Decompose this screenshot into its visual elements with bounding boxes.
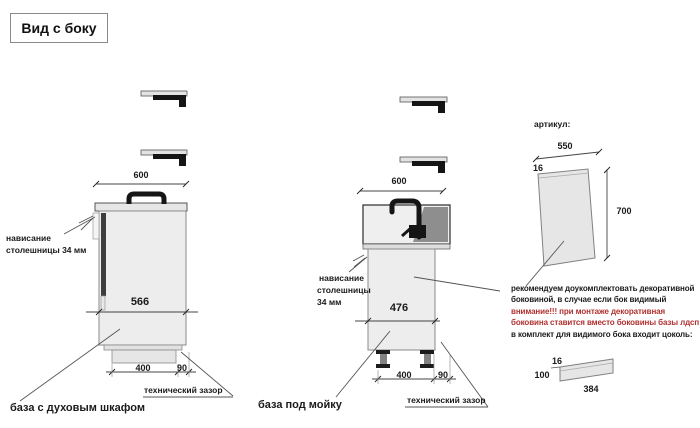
note-line-3-warning: внимание!!! при монтаже декоративная bbox=[511, 307, 665, 316]
oven-plinth-dim: 400 bbox=[130, 363, 156, 373]
wall-bracket-icon bbox=[141, 91, 187, 107]
oven-base-drawing bbox=[93, 194, 187, 363]
panel-thickness-dim: 16 bbox=[531, 163, 545, 173]
oven-overhang-note-line1: нависание bbox=[6, 233, 51, 243]
wall-bracket-icon bbox=[141, 150, 187, 166]
oven-tech-gap-label: технический зазор bbox=[144, 385, 223, 395]
panel-height-dim: 700 bbox=[612, 206, 636, 216]
note-line-5: в комплект для видимого бока входит цоко… bbox=[511, 330, 692, 339]
article-heading: артикул: bbox=[534, 119, 570, 129]
drawing-lines bbox=[0, 0, 700, 428]
sink-plinth-dim: 400 bbox=[391, 370, 417, 380]
wall-bracket-icon bbox=[400, 97, 447, 113]
sink-tech-gap-label: технический зазор bbox=[407, 395, 486, 405]
note-line-4-warning: боковина ставится вместо боковины базы л… bbox=[511, 318, 699, 327]
note-line-1: рекомендуем доукомплектовать декоративно… bbox=[511, 284, 694, 293]
decor-side-panel-drawing bbox=[538, 169, 595, 266]
sink-depth-dim: 476 bbox=[383, 302, 415, 314]
panel-width-dim: 550 bbox=[552, 141, 578, 151]
plinth-length-dim: 384 bbox=[578, 384, 604, 394]
leg-icon bbox=[420, 350, 434, 368]
sink-base-drawing bbox=[363, 201, 450, 368]
plinth-thickness-dim: 16 bbox=[550, 356, 564, 366]
sink-gap-dim: 90 bbox=[433, 370, 453, 380]
oven-base-label: база с духовым шкафом bbox=[10, 402, 145, 414]
wall-bracket-icon bbox=[400, 157, 447, 173]
sink-overhang-note-line3: 34 мм bbox=[317, 297, 341, 307]
sink-width-dim: 600 bbox=[386, 176, 412, 186]
oven-depth-dim: 566 bbox=[124, 296, 156, 308]
note-line-2: боковиной, в случае если бок видимый bbox=[511, 295, 666, 304]
leg-icon bbox=[376, 350, 390, 368]
sink-overhang-note-line1: нависание bbox=[319, 273, 364, 283]
oven-gap-dim: 90 bbox=[172, 363, 192, 373]
oven-overhang-note-line2: столешницы 34 мм bbox=[6, 245, 86, 255]
plinth-height-dim: 100 bbox=[530, 370, 554, 380]
sink-base-label: база под мойку bbox=[258, 399, 342, 411]
drawing-canvas: Вид с боку bbox=[0, 0, 700, 428]
oven-width-dim: 600 bbox=[128, 170, 154, 180]
sink-overhang-note-line2: столешницы bbox=[317, 285, 371, 295]
